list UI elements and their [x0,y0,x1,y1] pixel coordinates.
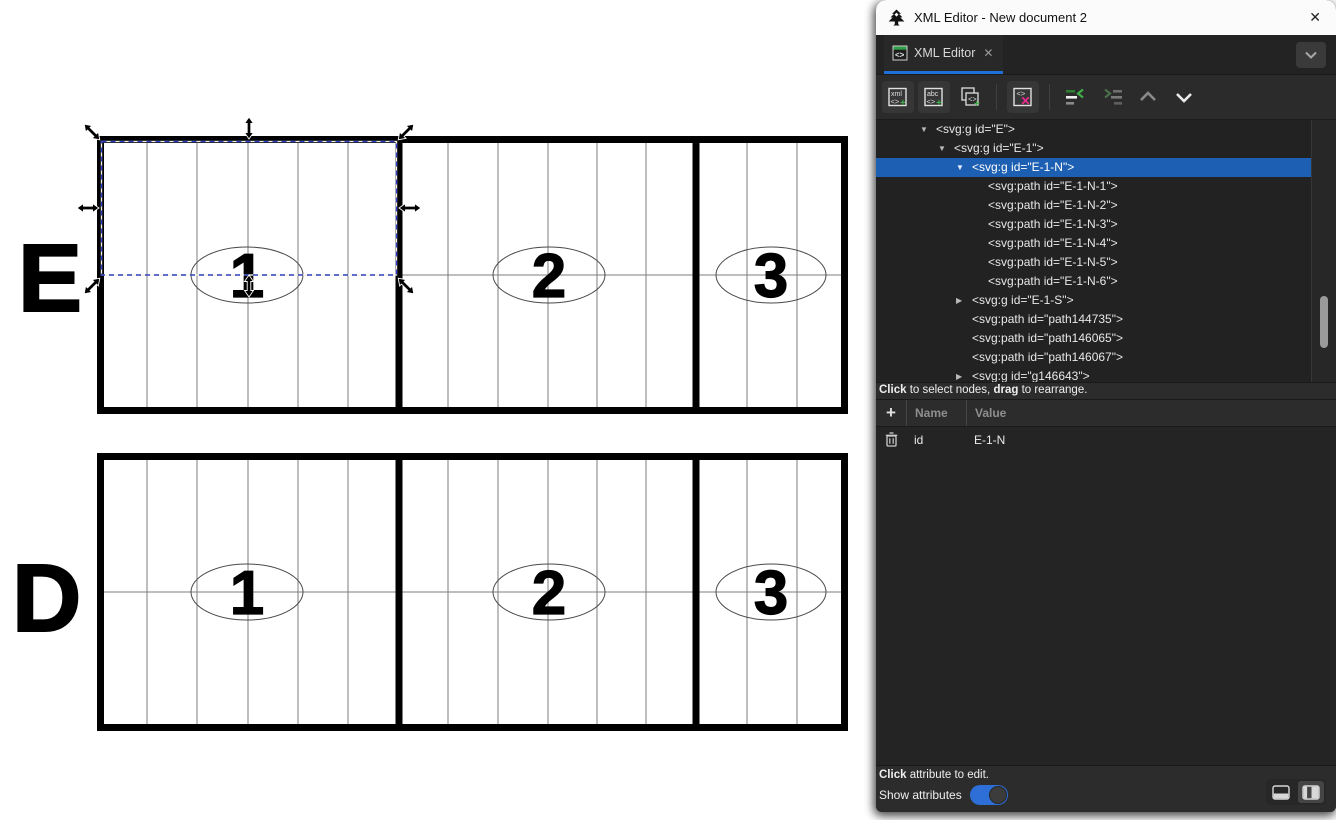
add-attribute-button[interactable]: + [876,403,906,423]
tree-node-label: <svg:g id="E"> [936,120,1015,139]
row-d-number-2[interactable]: 2 [532,559,566,628]
unindent-icon [1065,86,1087,108]
tree-node[interactable]: ▶<svg:g id="E-1-S"> [876,291,1311,310]
row-d-letter[interactable]: D [12,545,81,652]
attribute-value[interactable]: E-1-N [966,433,1336,447]
dialog-close-icon[interactable]: ✕ [1306,9,1324,26]
scale-handle-top-left[interactable] [81,121,103,143]
tab-close-icon[interactable]: ✕ [983,46,993,60]
move-node-up-button[interactable] [1132,81,1164,113]
chevron-down-icon [1173,86,1195,108]
tree-node[interactable]: <svg:path id="path146067"> [876,348,1311,367]
tree-node-label: <svg:path id="path146065"> [972,329,1123,348]
svg-text:<>: <> [891,97,900,106]
scale-handle-top-center[interactable] [245,117,254,139]
horizontal-split-icon [1272,785,1290,800]
tree-scrollbar[interactable] [1311,120,1336,382]
row-e-letter[interactable]: E [18,225,82,332]
attribute-edit-hint: Click attribute to edit. [879,769,1330,781]
duplicate-node-button[interactable]: <> + [954,81,986,113]
delete-attribute-button[interactable] [876,432,906,447]
row-e-number-3[interactable]: 3 [754,242,788,311]
panel-footer: Click attribute to edit. Show attributes [876,765,1336,812]
tree-node[interactable]: <svg:path id="E-1-N-6"> [876,272,1311,291]
tree-node[interactable]: <svg:path id="path146065"> [876,329,1311,348]
toolbar-separator [1049,84,1050,110]
svg-text:<>: <> [927,97,936,106]
tree-node[interactable]: ▼<svg:g id="E"> [876,120,1311,139]
row-e-number-1[interactable]: 1 [230,242,264,311]
indent-icon [1101,86,1123,108]
row-e-number-2[interactable]: 2 [532,242,566,311]
toolbar-separator [996,84,997,110]
xml-toolbar: xml <> + abc <> + <> + [876,75,1336,120]
tree-node[interactable]: <svg:path id="E-1-N-3"> [876,215,1311,234]
row-e-section-labels[interactable]: 1 2 3 [191,242,826,311]
unindent-node-button[interactable] [1060,81,1092,113]
expander-icon[interactable]: ▼ [956,158,972,177]
drawing-svg: E [0,0,876,820]
delete-node-button[interactable]: <> ✕ [1007,81,1039,113]
tree-node[interactable]: <svg:path id="E-1-N-1"> [876,177,1311,196]
tree-node-label: <svg:g id="E-1"> [954,139,1044,158]
tree-node-label: <svg:path id="E-1-N-2"> [988,196,1118,215]
layout-switcher [1266,779,1326,805]
attr-name-header: Name [906,400,966,426]
indent-node-button[interactable] [1096,81,1128,113]
inkscape-logo-icon [888,9,905,26]
xml-node-icon: <> [892,45,908,61]
tree-node-label: <svg:g id="E-1-S"> [972,291,1074,310]
row-d-number-3[interactable]: 3 [754,559,788,628]
toggle-knob [989,786,1007,804]
expander-icon[interactable]: ▼ [920,120,936,139]
tree-node-label: <svg:path id="path146067"> [972,348,1123,367]
layout-vertical-button[interactable] [1298,781,1324,803]
tree-hint-bold: drag [993,384,1018,396]
tree-node-label: <svg:g id="g146643"> [972,367,1090,382]
tree-node-label: <svg:g id="E-1-N"> [972,158,1074,177]
row-d-grid-lines [102,459,844,726]
row-d-section-labels[interactable]: 1 2 3 [191,559,826,628]
tree-node-label: <svg:path id="path144735"> [972,310,1123,329]
tree-scrollbar-thumb[interactable] [1320,296,1328,348]
chevron-down-icon [1304,50,1318,60]
tree-node[interactable]: <svg:path id="E-1-N-2"> [876,196,1311,215]
panel-menu-button[interactable] [1296,42,1326,68]
inkscape-window: E [0,0,1336,820]
xml-tree: ▼<svg:g id="E"> ▼<svg:g id="E-1"> ▼<svg:… [876,120,1336,382]
chevron-up-icon [1137,86,1159,108]
dialog-title: XML Editor - New document 2 [914,10,1306,25]
new-element-node-button[interactable]: xml <> + [882,81,914,113]
attributes-header: + Name Value [876,400,1336,427]
expander-icon[interactable]: ▼ [938,139,954,158]
edit-hint-text: attribute to edit. [907,769,989,781]
tree-node[interactable]: ▼<svg:g id="E-1"> [876,139,1311,158]
tree-node[interactable]: <svg:path id="path144735"> [876,310,1311,329]
tree-node[interactable]: ▶<svg:g id="g146643"> [876,367,1311,382]
expander-icon[interactable]: ▶ [956,291,972,310]
tree-node-label: <svg:path id="E-1-N-6"> [988,272,1118,291]
new-text-node-button[interactable]: abc <> + [918,81,950,113]
svg-text:+: + [900,98,906,108]
attribute-row[interactable]: id E-1-N [876,427,1336,452]
tree-node-label: <svg:path id="E-1-N-4"> [988,234,1118,253]
show-attributes-toggle[interactable] [970,785,1008,805]
svg-text:+: + [936,98,942,108]
edit-hint-bold: Click [879,769,907,781]
tree-hint-bold: Click [879,384,907,396]
drawing-row-d[interactable]: D [12,456,845,728]
tree-node-selected[interactable]: ▼<svg:g id="E-1-N"> [876,158,1311,177]
tree-hint-text: to select nodes, [907,384,994,396]
tree-node-label: <svg:path id="E-1-N-3"> [988,215,1118,234]
attr-value-header: Value [966,400,1336,426]
show-attributes-label: Show attributes [879,788,962,802]
svg-text:+: + [974,99,980,108]
tab-bar: <> XML Editor ✕ [876,35,1336,75]
canvas[interactable]: E [0,0,876,820]
attributes-empty-area [876,452,1336,765]
dialog-titlebar[interactable]: XML Editor - New document 2 ✕ [876,0,1336,35]
row-d-number-1[interactable]: 1 [230,559,264,628]
tree-node[interactable]: <svg:path id="E-1-N-4"> [876,234,1311,253]
move-node-down-button[interactable] [1168,81,1200,113]
tree-node-label: <svg:path id="E-1-N-1"> [988,177,1118,196]
trash-icon [885,432,898,447]
tree-node[interactable]: <svg:path id="E-1-N-5"> [876,253,1311,272]
tree-node-label: <svg:path id="E-1-N-5"> [988,253,1118,272]
svg-text:<>: <> [895,51,905,60]
vertical-split-icon [1302,785,1320,800]
tree-hint-text: to rearrange. [1018,384,1087,396]
expander-icon[interactable]: ▶ [956,367,972,382]
tab-xml-editor[interactable]: <> XML Editor ✕ [884,35,1003,74]
layout-horizontal-button[interactable] [1268,781,1294,803]
svg-text:✕: ✕ [1021,94,1031,108]
scale-handle-left[interactable] [77,204,99,213]
tab-label: XML Editor [914,46,975,60]
attribute-name[interactable]: id [906,433,966,447]
tree-hint: Click to select nodes, drag to rearrange… [876,382,1336,400]
xml-editor-dialog: XML Editor - New document 2 ✕ <> XML Edi… [876,0,1336,812]
